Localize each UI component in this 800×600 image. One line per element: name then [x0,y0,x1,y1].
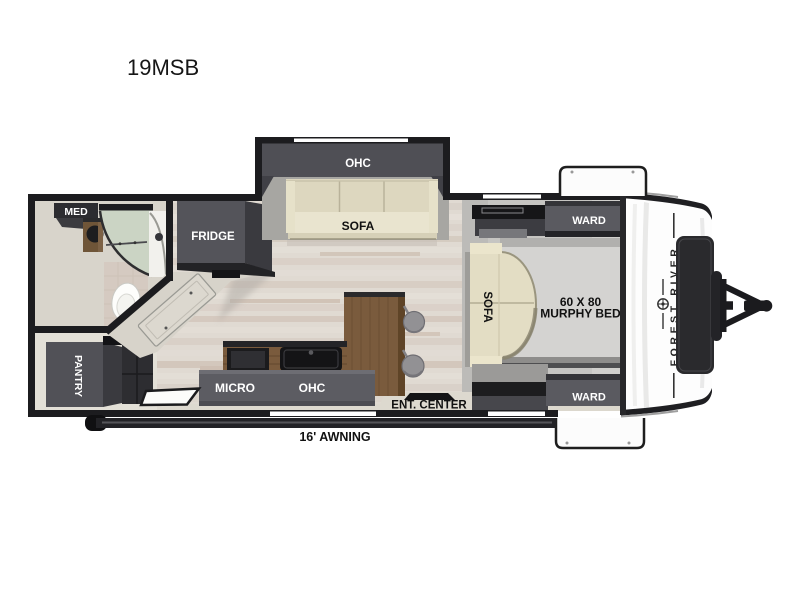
svg-text:ENT. CENTER: ENT. CENTER [391,400,467,412]
svg-text:MURPHY BED: MURPHY BED [540,307,621,321]
svg-text:OHC: OHC [299,381,326,395]
svg-text:19MSB: 19MSB [127,55,199,80]
svg-text:OHC: OHC [345,158,371,170]
svg-text:PANTRY: PANTRY [72,355,84,397]
svg-text:MED: MED [64,206,88,218]
svg-text:WARD: WARD [572,215,606,227]
svg-text:16' AWNING: 16' AWNING [299,430,370,444]
svg-text:MICRO: MICRO [215,381,255,395]
svg-text:WARD: WARD [572,392,606,404]
svg-text:FRIDGE: FRIDGE [191,231,235,243]
svg-text:SOFA: SOFA [342,219,375,233]
svg-text:SOFA: SOFA [481,291,493,322]
